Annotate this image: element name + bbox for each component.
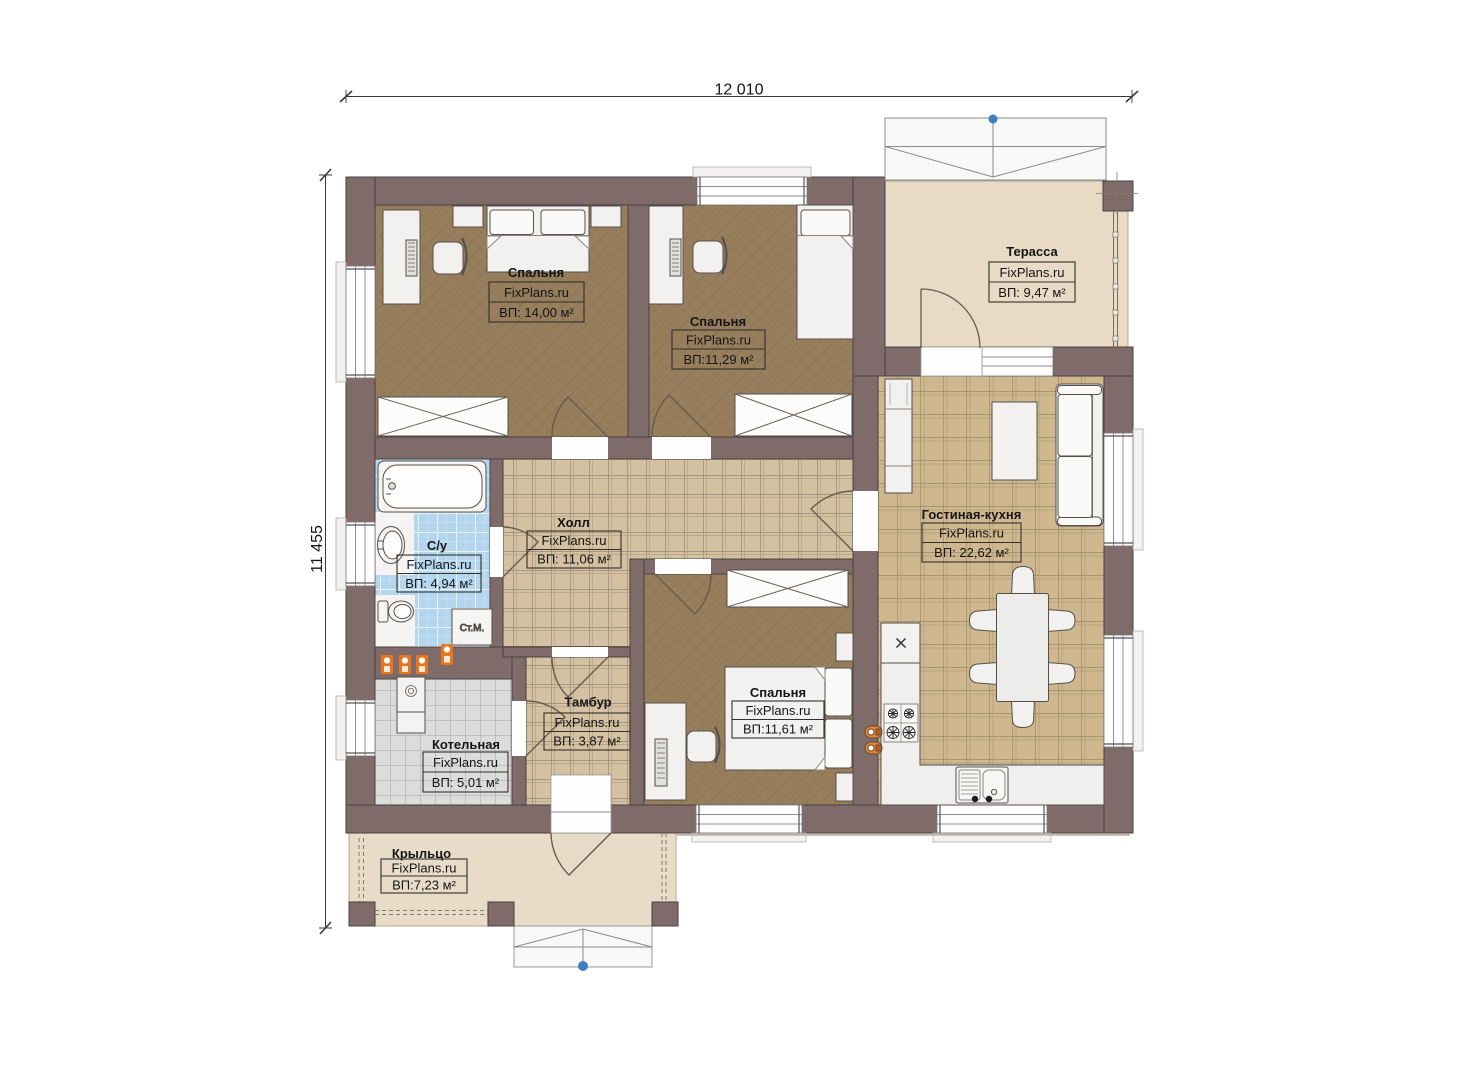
svg-text:ВП: 9,47 м²: ВП: 9,47 м² [998,285,1066,300]
svg-text:FixPlans.ru: FixPlans.ru [999,265,1064,280]
svg-text:Холл: Холл [557,515,590,530]
svg-text:С/у: С/у [427,538,448,553]
svg-text:Спальня: Спальня [690,314,746,329]
svg-text:ВП: 4,94 м²: ВП: 4,94 м² [405,576,473,591]
svg-text:ВП: 5,01 м²: ВП: 5,01 м² [432,775,500,790]
svg-text:ВП:11,61 м²: ВП:11,61 м² [743,722,814,737]
svg-text:FixPlans.ru: FixPlans.ru [541,533,606,548]
svg-text:FixPlans.ru: FixPlans.ru [406,557,471,572]
svg-text:Котельная: Котельная [432,737,500,752]
svg-text:Терасса: Терасса [1006,244,1058,259]
svg-text:ВП:7,23 м²: ВП:7,23 м² [392,878,456,893]
svg-text:FixPlans.ru: FixPlans.ru [391,861,456,876]
svg-text:FixPlans.ru: FixPlans.ru [686,333,751,348]
svg-text:ВП: 22,62 м²: ВП: 22,62 м² [934,545,1009,560]
svg-text:ВП:11,29 м²: ВП:11,29 м² [683,352,754,367]
svg-text:ВП: 11,06 м²: ВП: 11,06 м² [537,552,611,567]
svg-text:Ст.М.: Ст.М. [460,623,485,634]
svg-text:Гостиная-кухня: Гостиная-кухня [922,507,1022,522]
svg-text:11 455: 11 455 [309,525,326,573]
svg-text:FixPlans.ru: FixPlans.ru [504,285,569,300]
svg-text:Тамбур: Тамбур [564,695,611,710]
svg-text:Спальня: Спальня [750,685,806,700]
svg-text:ВП: 3,87 м²: ВП: 3,87 м² [553,734,621,749]
svg-text:FixPlans.ru: FixPlans.ru [433,755,498,770]
svg-text:FixPlans.ru: FixPlans.ru [939,526,1004,541]
svg-text:Спальня: Спальня [508,265,564,280]
svg-text:FixPlans.ru: FixPlans.ru [554,715,619,730]
svg-text:FixPlans.ru: FixPlans.ru [745,703,810,718]
svg-text:ВП: 14,00 м²: ВП: 14,00 м² [499,305,574,320]
svg-text:12 010: 12 010 [715,82,764,99]
